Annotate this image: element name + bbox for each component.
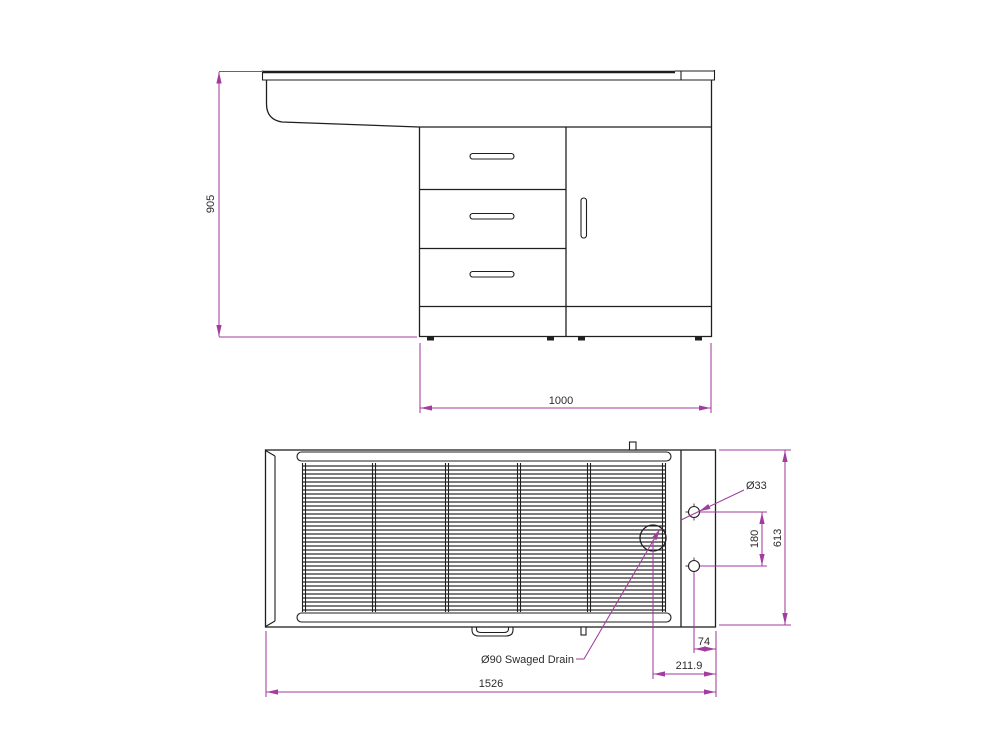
dimension-hole-spacing-180: 180 (700, 512, 767, 566)
tap-ledge (681, 451, 703, 627)
foot-1 (427, 337, 434, 341)
dim-label-211-9: 211.9 (676, 660, 703, 672)
left-rim (266, 451, 276, 627)
dimension-height-905: 905 (205, 72, 417, 338)
label-drain: Ø90 Swaged Drain (481, 654, 574, 666)
tap-hole-bottom (686, 558, 703, 575)
dim-label-1000: 1000 (549, 395, 573, 407)
top-rim-band (297, 452, 671, 461)
plan-view: Ø33 Ø90 Swaged Drain 180 613 74 (266, 442, 792, 697)
bowl-apron-profile (267, 80, 420, 127)
left-rim-chamfer-top (266, 451, 276, 457)
technical-drawing-page: 905 1000 (0, 0, 1000, 750)
foot-2 (547, 337, 554, 341)
callout-hole-diameter: Ø33 (681, 480, 767, 520)
drawer-handle-1 (470, 154, 514, 160)
foot-4 (695, 337, 702, 341)
drawer-handle-3 (470, 272, 514, 278)
dim-label-905: 905 (205, 195, 217, 213)
tap-hole-top (686, 504, 703, 521)
foot-3 (578, 337, 585, 341)
left-rim-chamfer-bottom (266, 621, 276, 627)
grill-ribs (302, 463, 666, 612)
handles (470, 154, 587, 278)
drawer-handle-2 (470, 214, 514, 220)
door-handle (581, 198, 587, 238)
dim-label-180: 180 (749, 530, 761, 548)
cabinet-carcass (419, 80, 712, 341)
top-clip-tab (630, 442, 637, 450)
bottom-rim-band (297, 613, 671, 622)
bottom-bracket (472, 627, 513, 636)
dim-label-74: 74 (698, 636, 710, 648)
front-elevation-view: 905 1000 (205, 70, 715, 413)
dim-label-613: 613 (772, 529, 784, 547)
bottom-clip-tab (581, 627, 586, 635)
dim-label-1526: 1526 (479, 678, 503, 690)
drainer-grill (302, 463, 666, 612)
technical-drawing-canvas: 905 1000 (0, 0, 1000, 750)
dimension-hole-edge-74: 74 (694, 572, 716, 653)
dimension-width-1000: 1000 (420, 343, 711, 413)
label-hole-diameter: Ø33 (746, 480, 767, 492)
worktop-edge (262, 70, 715, 80)
